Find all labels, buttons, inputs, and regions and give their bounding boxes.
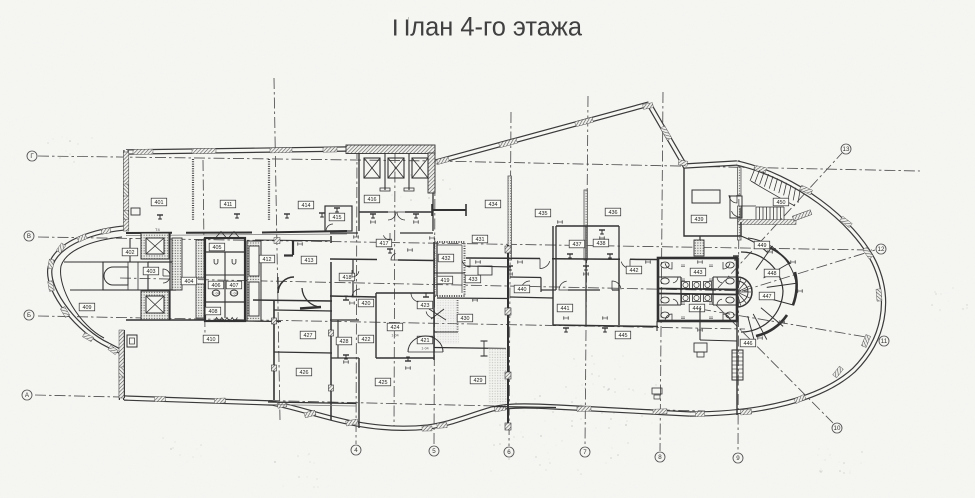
svg-text:440: 440 bbox=[518, 287, 527, 293]
svg-text:6: 6 bbox=[507, 449, 511, 456]
svg-text:427: 427 bbox=[304, 333, 313, 339]
svg-text:422: 422 bbox=[362, 337, 371, 343]
svg-text:403: 403 bbox=[147, 269, 156, 275]
svg-text:420: 420 bbox=[362, 301, 371, 307]
svg-text:404: 404 bbox=[185, 279, 194, 285]
svg-text:419: 419 bbox=[441, 278, 450, 284]
svg-text:410: 410 bbox=[207, 337, 216, 343]
svg-text:11: 11 bbox=[881, 338, 888, 345]
svg-text:430: 430 bbox=[461, 316, 470, 322]
svg-text:9: 9 bbox=[736, 455, 740, 462]
svg-text:424: 424 bbox=[391, 325, 400, 331]
svg-text:1-04: 1-04 bbox=[212, 291, 219, 295]
svg-text:417: 417 bbox=[380, 241, 389, 247]
svg-text:445: 445 bbox=[619, 333, 628, 339]
svg-text:Т4: Т4 bbox=[155, 227, 160, 232]
svg-text:443: 443 bbox=[694, 270, 703, 276]
svg-text:1-04: 1-04 bbox=[230, 291, 237, 295]
svg-text:414: 414 bbox=[302, 203, 311, 209]
svg-text:447: 447 bbox=[763, 294, 772, 300]
svg-text:412: 412 bbox=[263, 257, 272, 263]
svg-text:437: 437 bbox=[573, 242, 582, 248]
svg-text:План 4-го этажа: План 4-го этажа bbox=[392, 12, 583, 42]
svg-text:Б: Б bbox=[27, 312, 31, 319]
svg-text:433: 433 bbox=[469, 277, 478, 283]
svg-text:12: 12 bbox=[878, 246, 885, 253]
svg-text:426: 426 bbox=[300, 370, 309, 376]
svg-text:406: 406 bbox=[212, 283, 221, 289]
svg-text:449: 449 bbox=[758, 243, 767, 249]
svg-text:428: 428 bbox=[340, 339, 349, 345]
svg-text:423: 423 bbox=[421, 303, 430, 309]
svg-text:431: 431 bbox=[476, 237, 485, 243]
svg-text:415: 415 bbox=[333, 215, 342, 221]
svg-text:425: 425 bbox=[379, 380, 388, 386]
svg-text:418: 418 bbox=[343, 275, 352, 281]
svg-text:407: 407 bbox=[230, 283, 239, 289]
svg-text:7: 7 bbox=[583, 449, 587, 456]
svg-text:439: 439 bbox=[695, 217, 704, 223]
svg-text:402: 402 bbox=[126, 250, 135, 256]
svg-text:8: 8 bbox=[658, 454, 662, 461]
svg-text:421: 421 bbox=[421, 338, 430, 344]
svg-text:405: 405 bbox=[213, 245, 222, 251]
svg-text:442: 442 bbox=[630, 268, 639, 274]
svg-text:429: 429 bbox=[474, 378, 483, 384]
svg-text:432: 432 bbox=[442, 256, 451, 262]
svg-text:441: 441 bbox=[561, 306, 570, 312]
svg-text:438: 438 bbox=[597, 241, 606, 247]
svg-text:408: 408 bbox=[209, 309, 218, 315]
svg-text:435: 435 bbox=[539, 211, 548, 217]
svg-text:448: 448 bbox=[768, 271, 777, 277]
svg-text:434: 434 bbox=[489, 202, 498, 208]
svg-text:401: 401 bbox=[155, 200, 164, 206]
svg-text:409: 409 bbox=[83, 305, 92, 311]
svg-text:5: 5 bbox=[432, 448, 436, 455]
svg-text:13: 13 bbox=[843, 146, 850, 153]
svg-text:436: 436 bbox=[609, 210, 618, 216]
svg-text:1-04: 1-04 bbox=[391, 333, 398, 337]
svg-text:1-04: 1-04 bbox=[421, 346, 428, 350]
svg-text:446: 446 bbox=[744, 341, 753, 347]
svg-text:В: В bbox=[27, 233, 31, 240]
svg-text:413: 413 bbox=[305, 258, 314, 264]
svg-text:411: 411 bbox=[224, 202, 233, 208]
svg-text:10: 10 bbox=[834, 425, 841, 432]
svg-text:450: 450 bbox=[777, 200, 786, 206]
svg-text:416: 416 bbox=[368, 197, 377, 203]
svg-text:4: 4 bbox=[354, 447, 358, 454]
